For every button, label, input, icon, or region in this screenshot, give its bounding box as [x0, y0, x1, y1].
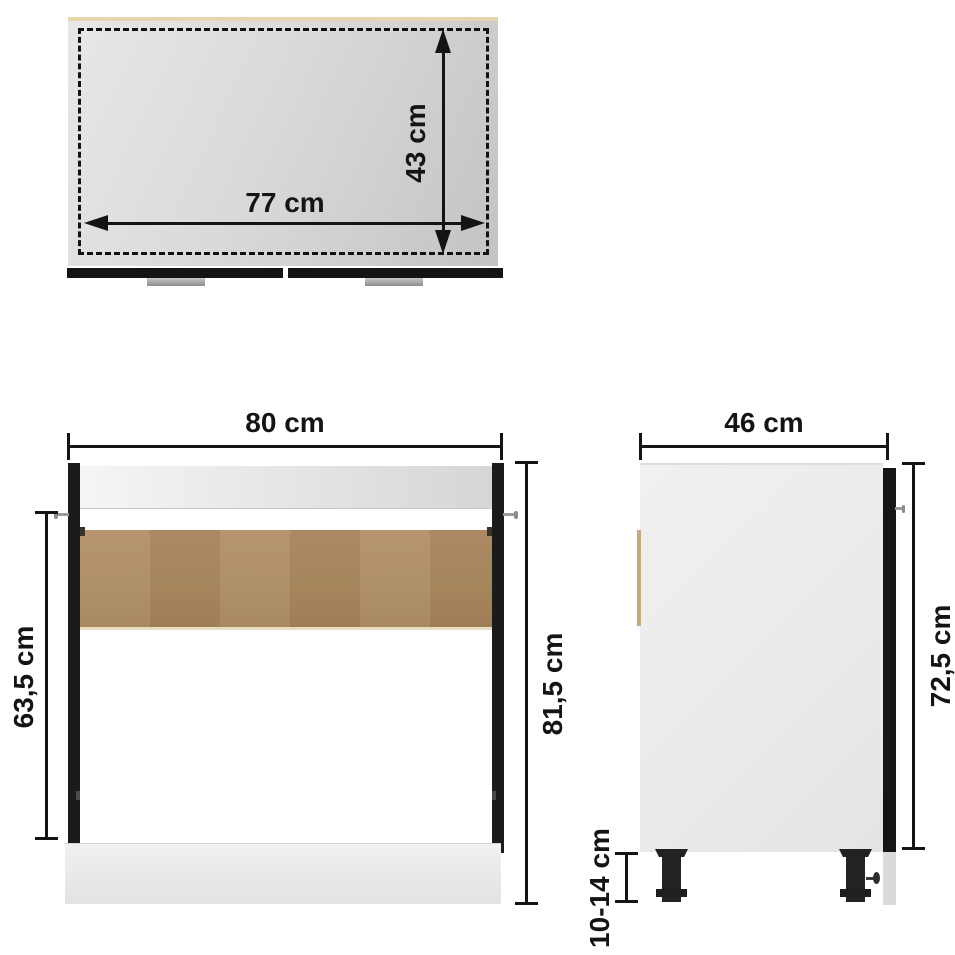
- dimension-diagram: 77 cm 43 cm 80 cm 63,5 cm: [0, 0, 955, 955]
- leg-foot: [656, 889, 687, 897]
- side-panel-height-tick-top: [35, 511, 58, 514]
- leg-adjuster-knob: [873, 872, 880, 884]
- top-view-front-bar-left: [67, 268, 283, 278]
- leg-height-dimension-line: [625, 853, 628, 903]
- adjustable-leg-left: [655, 849, 688, 903]
- front-back-panel: [80, 530, 492, 627]
- top-width-dimension-line: [92, 222, 472, 225]
- depth-label: 46 cm: [664, 409, 864, 437]
- cam-fitting-right: [492, 791, 496, 800]
- top-view-handle-left: [147, 278, 205, 286]
- total-height-tick-top: [515, 461, 538, 464]
- side-panel-height-tick-bottom: [35, 837, 58, 840]
- side-screw-pin-head: [902, 505, 905, 513]
- top-view-surface: [68, 21, 498, 266]
- depth-dimension-line: [640, 445, 888, 448]
- front-top-rail: [80, 466, 492, 509]
- front-width-tick-right: [500, 433, 503, 460]
- screw-pin-left: [57, 513, 69, 516]
- adjustable-leg-right: [839, 849, 872, 903]
- arrowhead-up-icon: [435, 29, 451, 53]
- arrowhead-left-icon: [84, 215, 108, 231]
- side-door-bottom-edge: [883, 852, 896, 905]
- front-width-tick-left: [67, 433, 70, 460]
- total-height-label: 81,5 cm: [539, 633, 567, 736]
- body-height-label: 72,5 cm: [927, 605, 955, 708]
- side-panel-height-dimension-line: [45, 512, 48, 840]
- arrowhead-right-icon: [461, 215, 485, 231]
- top-depth-dimension-line: [442, 50, 445, 233]
- screw-mark-left: [80, 527, 85, 536]
- top-depth-label: 43 cm: [402, 103, 430, 182]
- leg-height-label: 10-14 cm: [586, 828, 614, 948]
- leg-foot: [840, 889, 871, 897]
- leg-height-tick-bottom: [615, 900, 638, 903]
- body-height-tick-bottom: [902, 847, 925, 850]
- side-back-panel-edge: [637, 530, 641, 626]
- front-bottom-panel: [65, 843, 501, 904]
- total-height-dimension-line: [525, 462, 528, 905]
- depth-tick-right: [886, 433, 889, 460]
- leg-height-tick-top: [615, 852, 638, 855]
- cam-fitting-left: [76, 791, 80, 800]
- arrowhead-down-icon: [435, 230, 451, 254]
- side-panel-height-label: 63,5 cm: [10, 626, 38, 729]
- total-height-tick-bottom: [515, 902, 538, 905]
- side-door-front-edge: [883, 468, 896, 852]
- front-width-dimension-line: [68, 445, 502, 448]
- screw-mark-right: [487, 527, 492, 536]
- body-height-tick-top: [902, 462, 925, 465]
- side-body-panel: [640, 463, 883, 852]
- screw-pin-right-head: [514, 511, 518, 519]
- top-view-handle-right: [365, 278, 423, 286]
- top-width-label: 77 cm: [205, 189, 365, 217]
- front-width-label: 80 cm: [155, 409, 415, 437]
- top-view-front-bar-right: [288, 268, 503, 278]
- depth-tick-left: [639, 433, 642, 460]
- body-height-dimension-line: [912, 463, 915, 850]
